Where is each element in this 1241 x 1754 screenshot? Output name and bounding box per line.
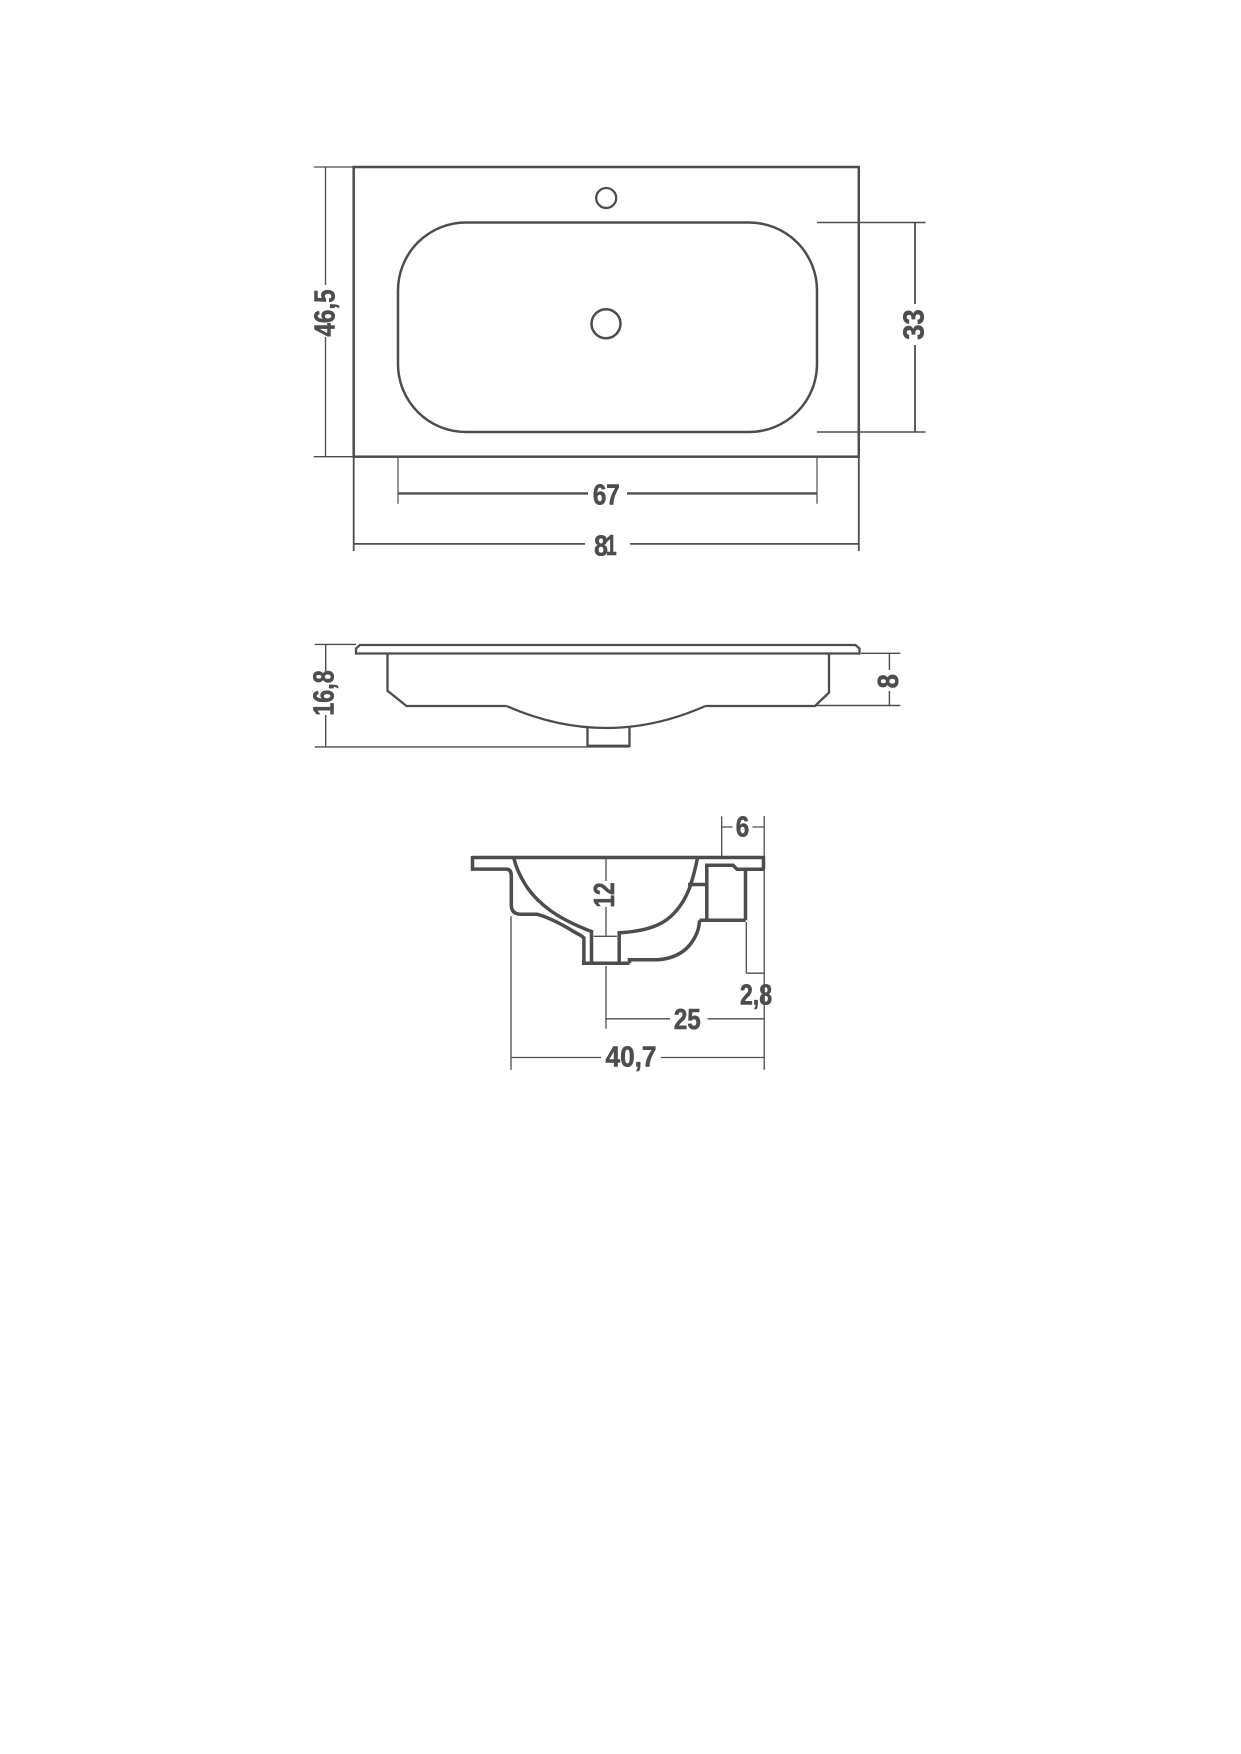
svg-text:25: 25 — [674, 1003, 701, 1035]
svg-text:16,8: 16,8 — [307, 670, 340, 715]
svg-text:33: 33 — [898, 309, 930, 339]
svg-text:67: 67 — [593, 479, 620, 511]
svg-text:6: 6 — [736, 810, 749, 842]
svg-text:2,8: 2,8 — [740, 980, 772, 1011]
svg-text:40,7: 40,7 — [605, 1040, 656, 1072]
svg-text:46,5: 46,5 — [309, 289, 341, 336]
svg-text:12: 12 — [589, 882, 620, 907]
svg-text:1: 1 — [606, 530, 617, 562]
svg-text:8: 8 — [872, 674, 905, 688]
